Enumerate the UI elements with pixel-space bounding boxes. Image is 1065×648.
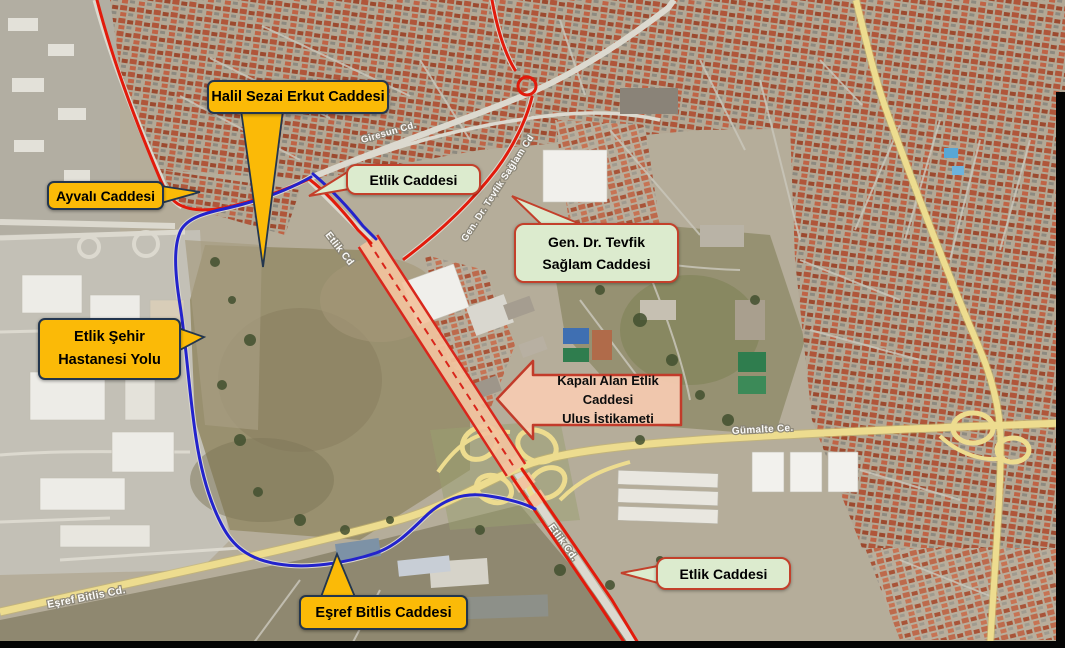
callout-label: Ayvalı Caddesi [56,188,155,204]
callout-ayvali-caddesi: Ayvalı Caddesi [47,181,164,210]
callout-esref-bitlis-caddesi: Eşref Bitlis Caddesi [299,595,468,630]
callout-halil-sezai-erkut-caddesi: Halil Sezai Erkut Caddesi [207,80,389,114]
callout-label-line2: Ulus İstikameti [562,409,654,428]
callout-label: Eşref Bitlis Caddesi [315,605,451,621]
callout-label-line1: Gen. Dr. Tevfik [548,231,645,253]
callout-etlik-caddesi-bottom: Etlik Caddesi [656,557,791,590]
callout-label-line1: Etlik Şehir [74,326,145,349]
callout-label-line1: Kapalı Alan Etlik Caddesi [536,371,680,409]
callout-label-line2: Hastanesi Yolu [58,349,161,372]
callout-label: Etlik Caddesi [370,172,458,188]
callout-label: Halil Sezai Erkut Caddesi [211,89,384,105]
annotated-satellite-map: Giresun Cd. Gen. Dr. Tevfik Sağlam Cd Et… [0,0,1065,648]
callout-kapali-alan-etlik-caddesi: Kapalı Alan Etlik Caddesi Ulus İstikamet… [536,373,680,425]
callout-etlik-sehir-hastanesi-yolu: Etlik Şehir Hastanesi Yolu [38,318,181,380]
callout-label-line2: Sağlam Caddesi [542,253,650,275]
callout-etlik-caddesi-top: Etlik Caddesi [346,164,481,195]
callout-label: Etlik Caddesi [680,566,768,582]
callout-gen-dr-tevfik-saglam-caddesi: Gen. Dr. Tevfik Sağlam Caddesi [514,223,679,283]
